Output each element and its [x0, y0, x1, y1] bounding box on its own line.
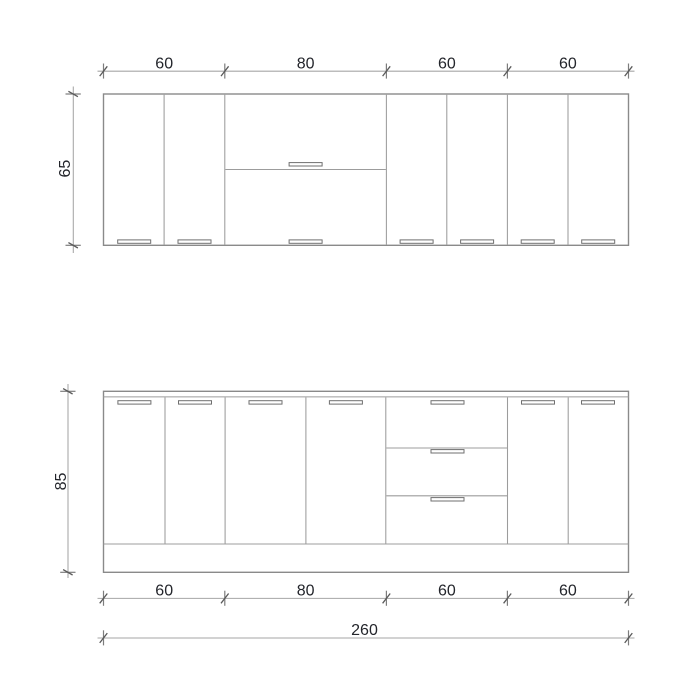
svg-text:260: 260	[351, 622, 378, 639]
svg-text:80: 80	[297, 583, 315, 600]
svg-text:60: 60	[155, 583, 173, 600]
svg-text:60: 60	[559, 583, 577, 600]
svg-text:80: 80	[297, 56, 315, 73]
svg-text:85: 85	[53, 473, 70, 491]
svg-text:60: 60	[559, 56, 577, 73]
svg-text:65: 65	[57, 160, 74, 178]
svg-text:60: 60	[155, 56, 173, 73]
svg-text:60: 60	[438, 583, 456, 600]
svg-text:60: 60	[438, 56, 456, 73]
